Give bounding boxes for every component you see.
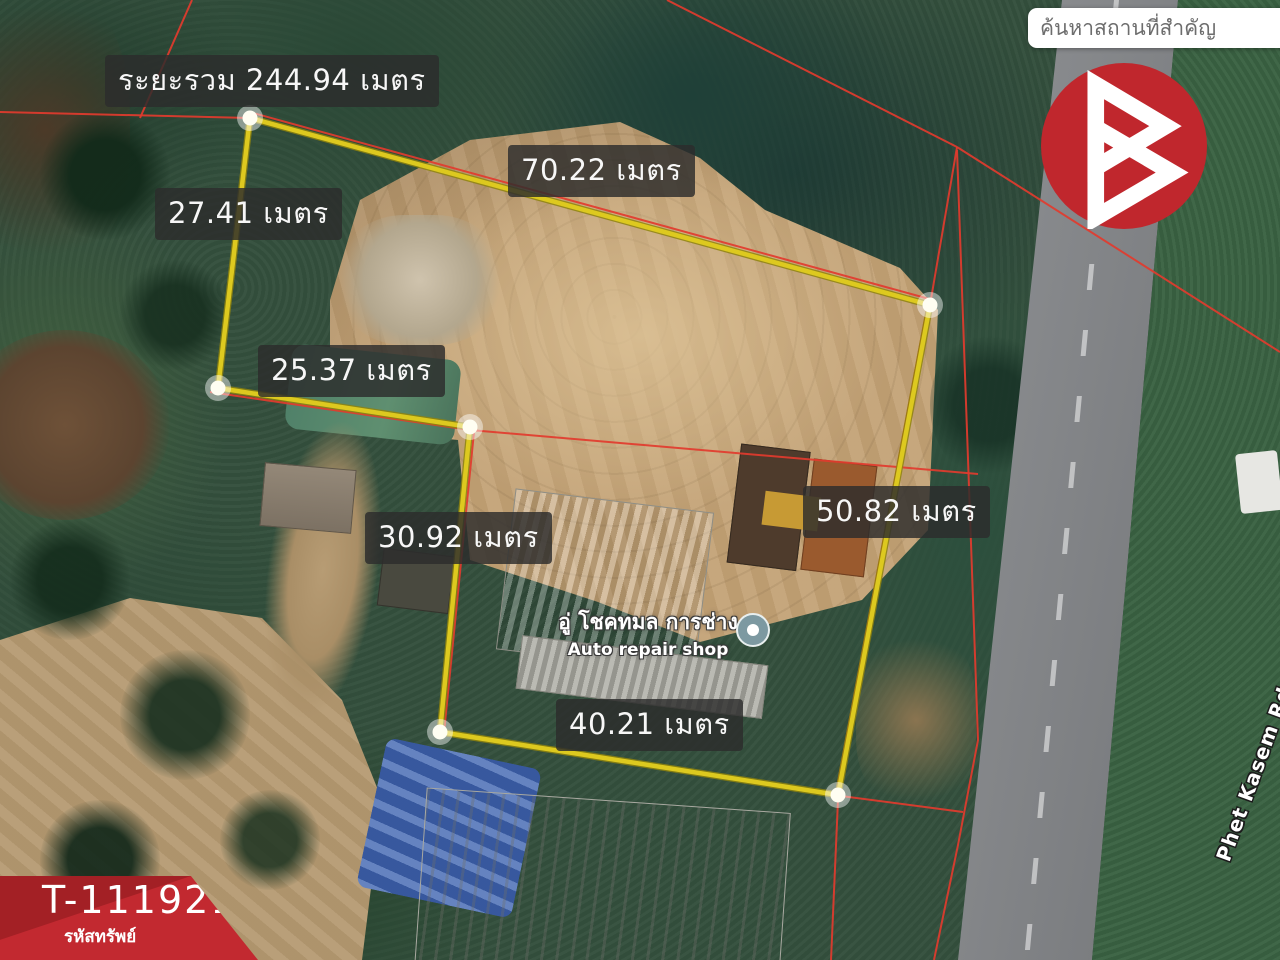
- search-input[interactable]: [1028, 8, 1280, 48]
- poi-name-thai: อู่ โชคทมล การช่าง: [548, 606, 748, 639]
- brand-logo: [1041, 63, 1207, 229]
- shed: [377, 548, 456, 614]
- poi-name-english: Auto repair shop: [548, 640, 748, 660]
- containers: [726, 443, 888, 586]
- tree: [10, 520, 130, 640]
- container-yellow: [761, 491, 821, 532]
- property-code-caption: รหัสทรัพย์: [64, 923, 136, 950]
- map-canvas[interactable]: ระยะรวม 244.94 เมตร70.22 เมตร27.41 เมตร2…: [0, 0, 1280, 960]
- shack: [259, 462, 356, 534]
- brand-b-icon: [1041, 63, 1207, 229]
- poi-marker-icon[interactable]: [736, 613, 770, 647]
- tree: [120, 650, 250, 780]
- rubble-area: [340, 215, 500, 345]
- warehouse-roof: [414, 787, 791, 960]
- small-roof: [1235, 450, 1280, 514]
- dirt-patch: [856, 630, 976, 810]
- tree: [40, 110, 170, 240]
- tree: [120, 260, 230, 370]
- tree: [220, 790, 320, 890]
- poi-label[interactable]: อู่ โชคทมล การช่าง Auto repair shop: [548, 606, 748, 660]
